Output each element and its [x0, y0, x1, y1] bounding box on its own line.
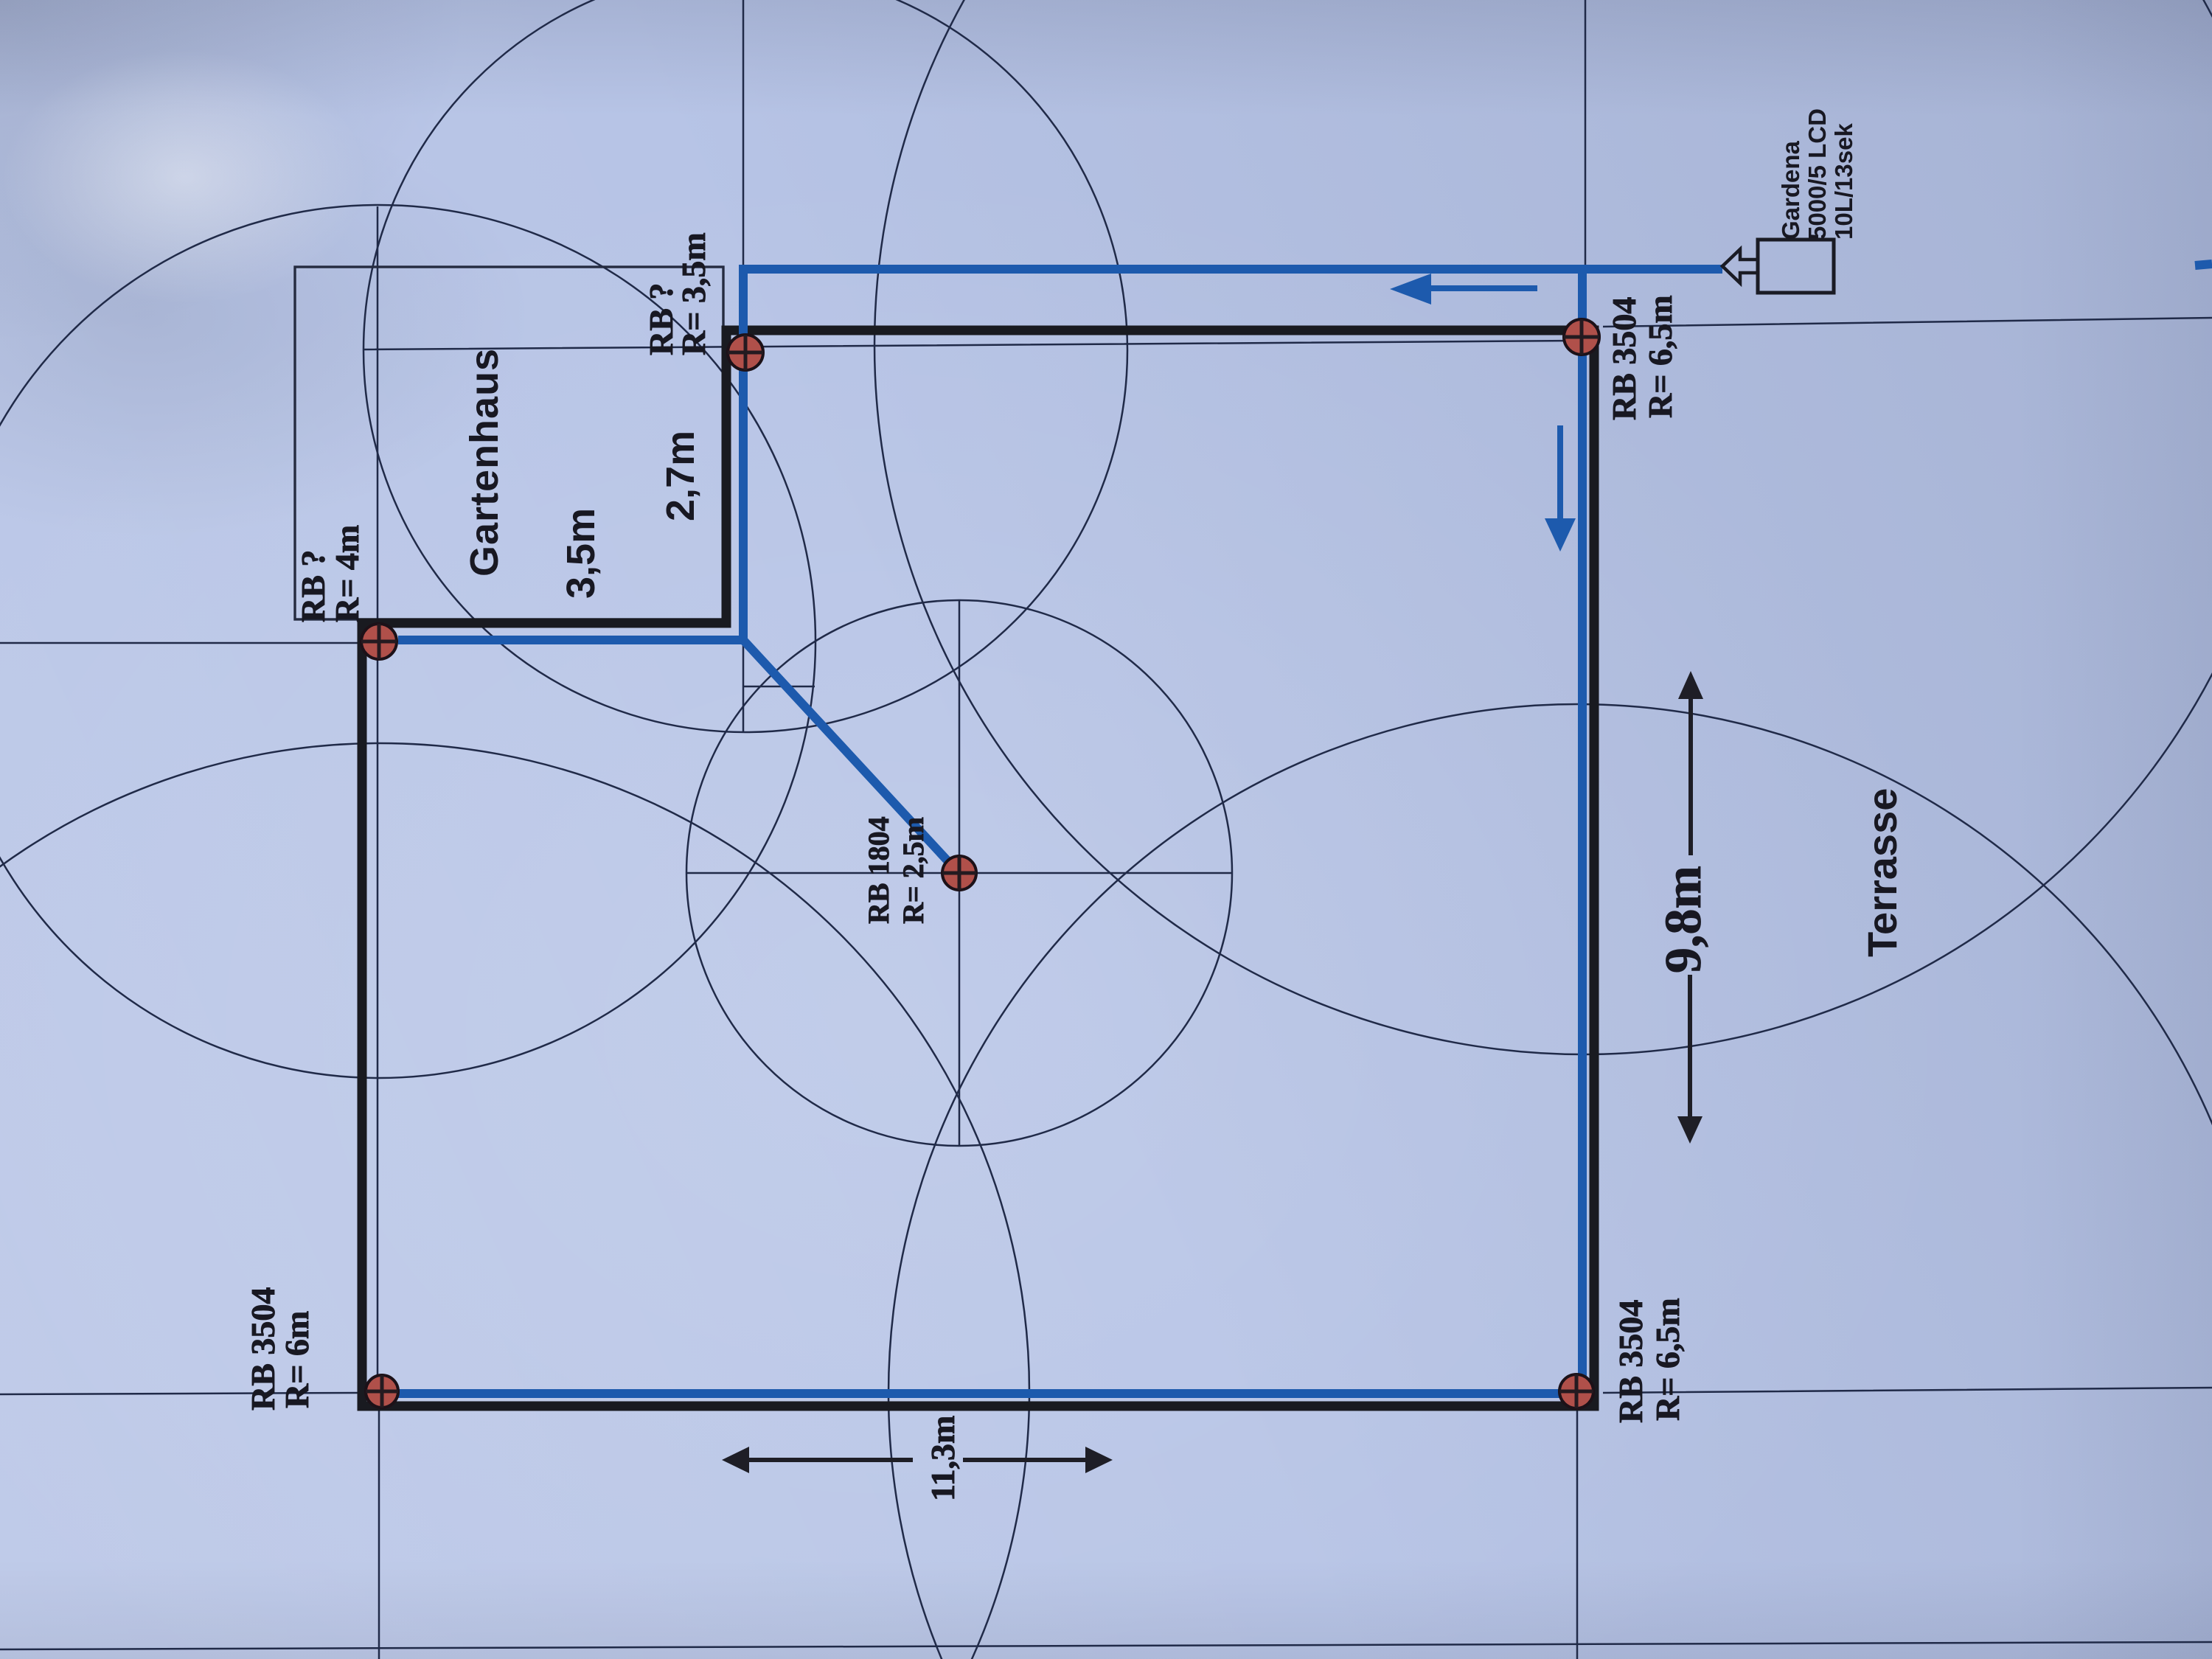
svg-text:Gardena: Gardena — [1777, 140, 1804, 240]
svg-text:RB 1804: RB 1804 — [862, 816, 895, 924]
svg-text:5000/5 LCD: 5000/5 LCD — [1804, 108, 1831, 240]
svg-text:R= 3,5m: R= 3,5m — [675, 232, 712, 355]
svg-text:2,7m: 2,7m — [658, 431, 703, 521]
svg-text:R= 6,5m: R= 6,5m — [1649, 1298, 1686, 1421]
svg-text:Terrasse: Terrasse — [1859, 788, 1905, 957]
svg-text:10L/13sek: 10L/13sek — [1830, 123, 1857, 240]
svg-text:3,5m: 3,5m — [559, 508, 603, 599]
svg-text:RB 3504: RB 3504 — [1605, 297, 1643, 420]
svg-text:11,3m: 11,3m — [924, 1416, 961, 1501]
svg-text:R= 2,5m: R= 2,5m — [897, 817, 930, 924]
svg-text:RB ?: RB ? — [294, 550, 332, 622]
svg-text:RB 3504: RB 3504 — [1612, 1300, 1649, 1423]
svg-text:R= 6,5m: R= 6,5m — [1641, 295, 1679, 418]
svg-text:9,8m: 9,8m — [1655, 866, 1712, 973]
svg-text:RB 3504: RB 3504 — [244, 1287, 282, 1411]
svg-text:Gartenhaus: Gartenhaus — [462, 348, 507, 577]
svg-text:R= 6m: R= 6m — [278, 1311, 316, 1408]
svg-text:R= 4m: R= 4m — [328, 525, 366, 622]
